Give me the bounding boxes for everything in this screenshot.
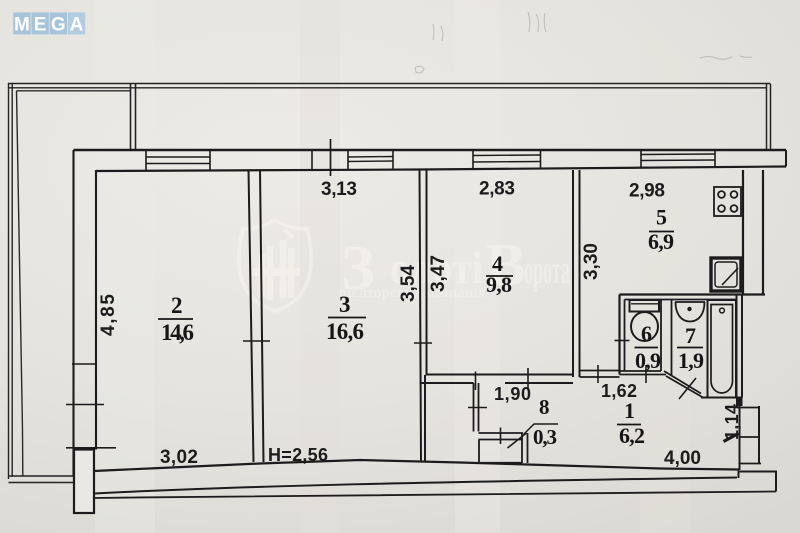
svg-text:1,90: 1,90 [494,384,531,404]
svg-text:4,85: 4,85 [98,294,119,336]
svg-text:3,54: 3,54 [398,265,419,302]
svg-text:0,9: 0,9 [635,348,661,373]
svg-text:M: M [14,15,30,36]
svg-text:8: 8 [539,395,550,419]
svg-text:орота: орота [524,247,570,292]
svg-text:1,9: 1,9 [678,348,704,373]
svg-text:2,98: 2,98 [629,181,665,202]
svg-text:6,9: 6,9 [648,229,674,254]
svg-text:E: E [34,15,47,36]
svg-text:9,8: 9,8 [486,272,512,297]
svg-text:G: G [51,15,66,36]
svg-text:6,2: 6,2 [619,423,645,448]
svg-text:1: 1 [624,398,635,423]
svg-text:1,14: 1,14 [722,404,742,440]
svg-text:5: 5 [656,205,667,230]
svg-text:16,6: 16,6 [326,319,364,344]
svg-text:3,13: 3,13 [321,179,357,200]
svg-text:3,02: 3,02 [160,447,198,468]
svg-text:H=2,56: H=2,56 [268,445,328,465]
svg-text:6: 6 [641,321,652,346]
svg-text:0,3: 0,3 [533,425,557,449]
svg-text:3,30: 3,30 [581,243,602,280]
svg-text:3,47: 3,47 [428,255,449,292]
svg-text:7: 7 [685,323,696,348]
svg-text:14,6: 14,6 [161,320,194,345]
svg-text:4,00: 4,00 [664,448,701,469]
svg-text:2: 2 [171,293,183,318]
svg-text:2,83: 2,83 [479,179,515,200]
svg-text:A: A [70,15,84,36]
svg-text:3: 3 [339,292,351,317]
